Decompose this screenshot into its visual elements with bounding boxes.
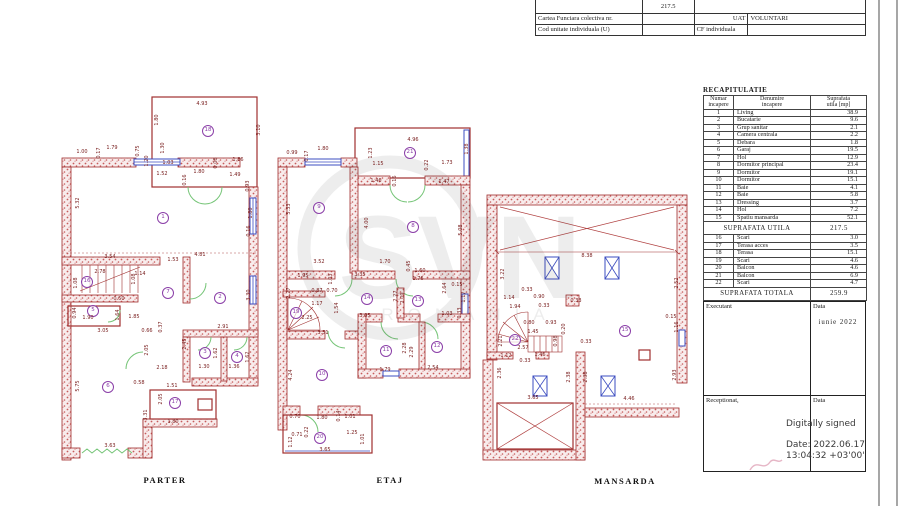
dimension-label: 3.30 — [246, 289, 252, 300]
dimension-label: 1.45 — [527, 329, 538, 335]
dimension-label: 1.12 — [288, 436, 294, 447]
door-arc — [205, 187, 222, 204]
recap-rows-1: 1Living38.92Bucatarie9.63Grup sanitar2.1… — [704, 109, 867, 222]
room-name-cell: Terasa — [734, 250, 811, 258]
dimension-label: 3.65 — [527, 395, 538, 401]
room-number-cell: 6 — [704, 147, 734, 155]
table-row: 11Baie4.1 — [704, 184, 867, 192]
dimension-label: 1.95 — [297, 273, 308, 279]
executant-label: Executant — [704, 301, 810, 311]
dimension-label: 0.66 — [141, 328, 152, 334]
dimension-label: 1.16 — [674, 321, 680, 332]
room-number-cell: 20 — [704, 265, 734, 273]
room-number-cell: 18 — [704, 250, 734, 258]
dimension-label: 1.20 — [144, 155, 150, 166]
room-name-cell: Debara — [734, 139, 811, 147]
room-name-cell: Balcon — [734, 272, 811, 280]
dimension-label: 1.94 — [509, 304, 520, 310]
total-row: SUPRAFATA TOTALA 259.9 — [704, 287, 867, 300]
dimension-label: 1.51 — [166, 383, 177, 389]
room-name-cell: Dressing — [734, 199, 811, 207]
data-label: Data — [810, 395, 865, 405]
door-arc — [190, 283, 206, 299]
dimension-label: 0.16 — [246, 225, 252, 236]
room-name-cell: Terasa acces — [734, 242, 811, 250]
room-name-cell: Balcon — [734, 265, 811, 273]
dimension-label: 1.79 — [106, 145, 117, 151]
room-number-cell: 9 — [704, 169, 734, 177]
floor-label: MANSARDA — [594, 476, 656, 486]
room-name-cell: Dormitor — [734, 169, 811, 177]
door-arc — [126, 352, 143, 369]
room-name-cell: Dormitor principal — [734, 162, 811, 170]
dimension-label: 1.49 — [229, 172, 240, 178]
dimension-label: 1.80 — [248, 207, 254, 218]
table-row: Cartea Funciara colectiva nr. UAT VOLUNT… — [536, 14, 866, 25]
dimension-label: 1.62 — [213, 347, 219, 358]
dimension-label: 0.70 — [326, 288, 337, 294]
table-row: 20Balcon4.6 — [704, 265, 867, 273]
dimension-label: 1.70 — [379, 259, 390, 265]
dimension-label: 4.46 — [623, 396, 634, 402]
dimension-label: 3.05 — [97, 328, 108, 334]
dimension-label: 1.53 — [167, 257, 178, 263]
area-cell: 4.1 — [811, 184, 867, 192]
dimension-label: 0.94 — [72, 307, 78, 318]
room-number: 19 — [290, 307, 302, 319]
room-number-cell: 7 — [704, 154, 734, 162]
area-cell: 15.1 — [811, 250, 867, 258]
room-name-cell: Baie — [734, 192, 811, 200]
marker-box — [639, 350, 650, 360]
recap-title: RECAPITULATIE — [703, 86, 866, 94]
subtotal-label: SUPRAFATA UTILA — [704, 222, 811, 235]
room-name-cell: Spatiu mansarda — [734, 214, 811, 222]
room-number-cell: 22 — [704, 280, 734, 288]
room-name-cell: Grup sanitar — [734, 124, 811, 132]
room-number: 11 — [380, 345, 392, 357]
dimension-label: 2.38 — [583, 371, 589, 382]
dimension-label: 0.16 — [182, 174, 188, 185]
dimension-label: 0.93 — [545, 320, 556, 326]
dimension-label: 1.30 — [198, 364, 209, 370]
area-cell: 3.7 — [811, 199, 867, 207]
dimension-label: 0.37 — [158, 321, 164, 332]
total-value: 259.9 — [811, 287, 867, 300]
table-row: 6Garaj19.5 — [704, 147, 867, 155]
table-row: 9Dormitor19.1 — [704, 169, 867, 177]
dimension-label: 0.90 — [533, 294, 544, 300]
area-cell: 7.2 — [811, 207, 867, 215]
dimension-label: 0.33 — [457, 307, 463, 318]
date-value: iunie 2022 — [811, 319, 865, 326]
dimension-label: 2.27 — [393, 290, 399, 301]
uat-label: UAT — [694, 14, 748, 25]
area-cell: 23.4 — [811, 162, 867, 170]
room-number: 1 — [157, 212, 169, 224]
dimension-label: 2.36 — [497, 367, 503, 378]
dimension-label: 4.24 — [288, 369, 294, 380]
dimension-label: 3.63 — [104, 443, 115, 449]
dimension-label: 1.73 — [441, 160, 452, 166]
area-cell: 6.9 — [811, 272, 867, 280]
dimension-label: 1.38 — [464, 143, 470, 154]
dimension-label: 2.29 — [409, 346, 415, 357]
dimension-label: 0.33 — [521, 287, 532, 293]
room-number: 14 — [361, 293, 373, 305]
room-name-cell: Baie — [734, 184, 811, 192]
area-cell: 4.6 — [811, 265, 867, 273]
room-number: 2 — [214, 292, 226, 304]
room-number: 8 — [407, 221, 419, 233]
signature-line: Digitally signed — [786, 419, 878, 429]
dimension-label: 3.22 — [500, 268, 506, 279]
room-number-cell: 1 — [704, 109, 734, 117]
door-arc — [328, 331, 345, 348]
room-number-cell: 4 — [704, 132, 734, 140]
room-number-cell: 13 — [704, 199, 734, 207]
room-name-cell: Hol — [734, 207, 811, 215]
table-row: Cod unitate individuala (U) CF individua… — [536, 25, 866, 36]
dimension-label: 2.52 — [674, 277, 680, 288]
dimension-label: 1.80 — [316, 415, 327, 421]
dimension-label: 4.96 — [407, 137, 418, 143]
recap-table: Numarincapere Denumireincapere Suprafata… — [703, 95, 867, 301]
table-row: 217.5 — [536, 0, 866, 14]
dimension-label: 1.80 — [193, 169, 204, 175]
area-cell: 4.6 — [811, 257, 867, 265]
dimension-label: 1.15 — [372, 161, 383, 167]
dimension-label: 4.00 — [364, 217, 370, 228]
room-name-cell: Garaj — [734, 147, 811, 155]
dimension-label: 1.08 — [131, 273, 137, 284]
dimension-label: 1.86 — [232, 157, 243, 163]
area-cell: 19.5 — [811, 147, 867, 155]
room-name-cell: Camera centrala — [734, 132, 811, 140]
area-value: 217.5 — [642, 0, 694, 14]
dimension-label: 1.01 — [344, 414, 355, 420]
cf-individuala-label: CF individuala — [694, 25, 748, 36]
room-name-cell: Bucatarie — [734, 117, 811, 125]
room-number-cell: 17 — [704, 242, 734, 250]
dimension-label: 0.17 — [96, 147, 102, 158]
dimension-label: 0.99 — [286, 150, 297, 156]
table-row: 13Dressing3.7 — [704, 199, 867, 207]
receptionat-label: Receptionat, — [704, 395, 810, 405]
table-row: 5Debara1.8 — [704, 139, 867, 147]
dimension-label: 0.33 — [538, 303, 549, 309]
table-row: 3Grup sanitar2.1 — [704, 124, 867, 132]
dimension-label: 1.17 — [311, 301, 322, 307]
room-number: 12 — [431, 341, 443, 353]
dimension-label: 2.05 — [158, 393, 164, 404]
room-name-cell: Hol — [734, 154, 811, 162]
dimension-label: 1.30 — [160, 142, 166, 153]
dimension-label: 3.05 — [359, 313, 370, 319]
dimension-label: 2.38 — [566, 371, 572, 382]
dimension-label: 0.93 — [245, 180, 251, 191]
dimension-label: 0.33 — [580, 339, 591, 345]
dimension-label: 3.10 — [256, 124, 262, 135]
room-number-cell: 21 — [704, 272, 734, 280]
dimension-label: 2.18 — [156, 365, 167, 371]
table-row: 21Balcon6.9 — [704, 272, 867, 280]
dimension-label: 1.12 — [500, 353, 511, 359]
room-number-cell: 5 — [704, 139, 734, 147]
dimension-label: 1.79 — [379, 367, 390, 373]
dimension-label: 5.75 — [75, 380, 81, 391]
dimension-label: 3.52 — [313, 259, 324, 265]
dimension-label: 2.93 — [672, 369, 678, 380]
garage-door-zigzag — [82, 449, 132, 453]
room-number-cell: 3 — [704, 124, 734, 132]
cod-unitate-label: Cod unitate individuala (U) — [536, 25, 643, 36]
table-row: 7Hol12.9 — [704, 154, 867, 162]
room-number: 7 — [162, 287, 174, 299]
room-name-cell: Dormitor — [734, 177, 811, 185]
door-arc — [188, 187, 205, 204]
dimension-label: 3.31 — [143, 409, 149, 420]
room-name-cell: Scari — [734, 257, 811, 265]
floor-label: PARTER — [143, 475, 186, 485]
room-number-cell: 12 — [704, 192, 734, 200]
dimension-label: 4.81 — [194, 252, 205, 258]
dimension-label: 0.15 — [451, 282, 462, 288]
dimension-label: 2.27 — [286, 287, 292, 298]
dimension-label: 2.64 — [442, 282, 448, 293]
area-cell: 1.8 — [811, 139, 867, 147]
room-number: 13 — [412, 295, 424, 307]
room-name-cell: Living — [734, 109, 811, 117]
dimension-label: 1.64 — [115, 309, 121, 320]
dimension-label: 1.85 — [128, 314, 139, 320]
dimension-label: 0.33 — [519, 358, 530, 364]
room-number: 21 — [404, 147, 416, 159]
dimension-label: 1.23 — [368, 147, 374, 158]
data-label: Data — [810, 301, 865, 311]
room-name-cell: Scari — [734, 280, 811, 288]
table-row: 19Scari4.6 — [704, 257, 867, 265]
dimension-label: 1.52 — [156, 171, 167, 177]
dimension-label: 4.93 — [196, 101, 207, 107]
cf-table: 217.5 Cartea Funciara colectiva nr. UAT … — [535, 0, 866, 36]
table-row: 17Terasa acces3.5 — [704, 242, 867, 250]
total-label: SUPRAFATA TOTALA — [704, 287, 811, 300]
room-number-cell: 14 — [704, 207, 734, 215]
room-number: 9 — [313, 202, 325, 214]
floor-label: ETAJ — [376, 475, 403, 485]
dimension-label: 5.33 — [286, 203, 292, 214]
signature-date: Date: 2022.06.17 — [786, 440, 878, 450]
table-row: 10Dormitor15.1 — [704, 177, 867, 185]
dimension-label: 0.15 — [665, 314, 676, 320]
dimension-label: 2.57 — [517, 345, 528, 351]
room-number: 20 — [314, 432, 326, 444]
dimension-label: 2.91 — [217, 324, 228, 330]
room-number: 18 — [202, 125, 214, 137]
dimension-label: 0.20 — [561, 323, 567, 334]
dimension-label: 1.03 — [441, 311, 452, 317]
recapitulatie-section: RECAPITULATIE Numarincapere Denumireinca… — [703, 86, 866, 472]
room-number: 17 — [169, 397, 181, 409]
room-number: 16 — [81, 276, 93, 288]
recap-header-row: Numarincapere Denumireincapere Suprafata… — [704, 96, 867, 110]
room-number: 3 — [199, 347, 211, 359]
dimension-label: 1.36 — [228, 364, 239, 370]
dimension-label: 3.35 — [354, 272, 365, 278]
subtotal-value: 217.5 — [811, 222, 867, 235]
room-number: 4 — [231, 351, 243, 363]
dimension-label: 8.38 — [581, 253, 592, 259]
dimension-label: 0.33 — [570, 298, 581, 304]
dimension-label: 1.90 — [82, 315, 93, 321]
room-number-cell: 8 — [704, 162, 734, 170]
door-arc — [234, 337, 247, 350]
dimension-label: 1.00 — [76, 149, 87, 155]
area-cell: 19.1 — [811, 169, 867, 177]
dimension-label: 0.22 — [424, 159, 430, 170]
dimension-label: 1.47 — [438, 179, 449, 185]
dimension-label: 1.76 — [412, 276, 423, 282]
dimension-label: 5.08 — [458, 224, 464, 235]
area-cell: 38.9 — [811, 109, 867, 117]
dimension-label: 1.62 — [245, 351, 251, 362]
uat-value: VOLUNTARI — [748, 14, 866, 25]
room-number-cell: 19 — [704, 257, 734, 265]
dimension-label: 1.08 — [73, 277, 79, 288]
dimension-label: 1.60 — [414, 268, 425, 274]
table-row: 1Living38.9 — [704, 109, 867, 117]
room-name-cell: Scari — [734, 235, 811, 243]
dimension-label: 1.01 — [360, 433, 366, 444]
dimension-label: 0.08 — [213, 157, 219, 168]
table-row: 12Baie5.8 — [704, 192, 867, 200]
room-number-cell: 11 — [704, 184, 734, 192]
room-number: 6 — [102, 381, 114, 393]
dimension-label: 1.25 — [346, 430, 357, 436]
room-number-cell: 16 — [704, 235, 734, 243]
area-cell: 12.9 — [811, 154, 867, 162]
dimension-label: 0.75 — [135, 145, 141, 156]
dimension-label: 0.17 — [304, 150, 310, 161]
dimension-label: 1.03 — [328, 273, 334, 284]
table-row: 14Hol7.2 — [704, 207, 867, 215]
dimension-label: 2.45 — [182, 338, 188, 349]
dimension-label: 1.54 — [334, 302, 340, 313]
dimension-label: 0.98 — [553, 335, 559, 346]
dimension-label: 1.80 — [167, 419, 178, 425]
room-number-cell: 10 — [704, 177, 734, 185]
table-row: 22Scari4.7 — [704, 280, 867, 288]
area-cell: 5.8 — [811, 192, 867, 200]
dimension-label: 3.65 — [319, 447, 330, 453]
dimension-label: 3.51 — [317, 330, 328, 336]
subtotal-row: SUPRAFATA UTILA 217.5 — [704, 222, 867, 235]
cf-colectiva-label: Cartea Funciara colectiva nr. — [536, 14, 643, 25]
dimension-label: 1.80 — [154, 114, 160, 125]
area-cell: 52.1 — [811, 214, 867, 222]
dimension-label: 2.25 — [301, 315, 312, 321]
table-row: 18Terasa15.1 — [704, 250, 867, 258]
dimension-label: 5.32 — [75, 197, 81, 208]
table-row: 15Spatiu mansarda52.1 — [704, 214, 867, 222]
recap-rows-2: 16Scari3.017Terasa acces3.518Terasa15.11… — [704, 235, 867, 288]
dimension-label: 0.87 — [311, 288, 322, 294]
dimension-label: 2.21 — [498, 335, 504, 346]
dimension-label: 0.14 — [336, 410, 342, 421]
table-row: 2Bucatarie9.6 — [704, 117, 867, 125]
area-cell: 2.2 — [811, 132, 867, 140]
dimension-label: 0.16 — [392, 175, 398, 186]
dimension-label: 2.05 — [144, 344, 150, 355]
dimension-label: 1.80 — [317, 146, 328, 152]
scanned-floor-plan-document: SVN ROMANIA PARTER18116725346174.931.803… — [0, 0, 900, 506]
dimension-label: 1.14 — [503, 295, 514, 301]
dimension-label: 2.09 — [400, 292, 406, 303]
area-cell: 4.7 — [811, 280, 867, 288]
dimension-label: 0.70 — [289, 414, 300, 420]
table-row: 8Dormitor principal23.4 — [704, 162, 867, 170]
dimension-label: 0.80 — [523, 320, 534, 326]
room-number-cell: 15 — [704, 214, 734, 222]
table-row: 4Camera centrala2.2 — [704, 132, 867, 140]
dimension-label: 2.28 — [402, 342, 408, 353]
dimension-label: 1.46 — [370, 178, 381, 184]
digital-signature: Digitally signed Date: 2022.06.17 13:04:… — [786, 419, 878, 461]
table-row: 16Scari3.0 — [704, 235, 867, 243]
dimension-label: 3.54 — [104, 254, 115, 260]
room-number: 15 — [619, 325, 631, 337]
dimension-label: 0.22 — [304, 426, 310, 437]
area-cell: 9.6 — [811, 117, 867, 125]
dimension-label: 1.03 — [162, 160, 173, 166]
dimension-label: 1.17 — [461, 291, 467, 302]
room-number: 10 — [316, 369, 328, 381]
area-cell: 3.0 — [811, 235, 867, 243]
area-cell: 2.1 — [811, 124, 867, 132]
dimension-label: 2.54 — [427, 365, 438, 371]
dimension-label: 2.78 — [94, 269, 105, 275]
dimension-label: 0.50 — [113, 296, 124, 302]
area-cell: 15.1 — [811, 177, 867, 185]
room-number-cell: 2 — [704, 117, 734, 125]
area-cell: 3.5 — [811, 242, 867, 250]
dimension-label: 0.58 — [133, 380, 144, 386]
dimension-label: 0.45 — [406, 260, 412, 271]
dimension-label: 1.46 — [534, 352, 545, 358]
signature-time: 13:04:32 +03'00' — [786, 451, 878, 461]
